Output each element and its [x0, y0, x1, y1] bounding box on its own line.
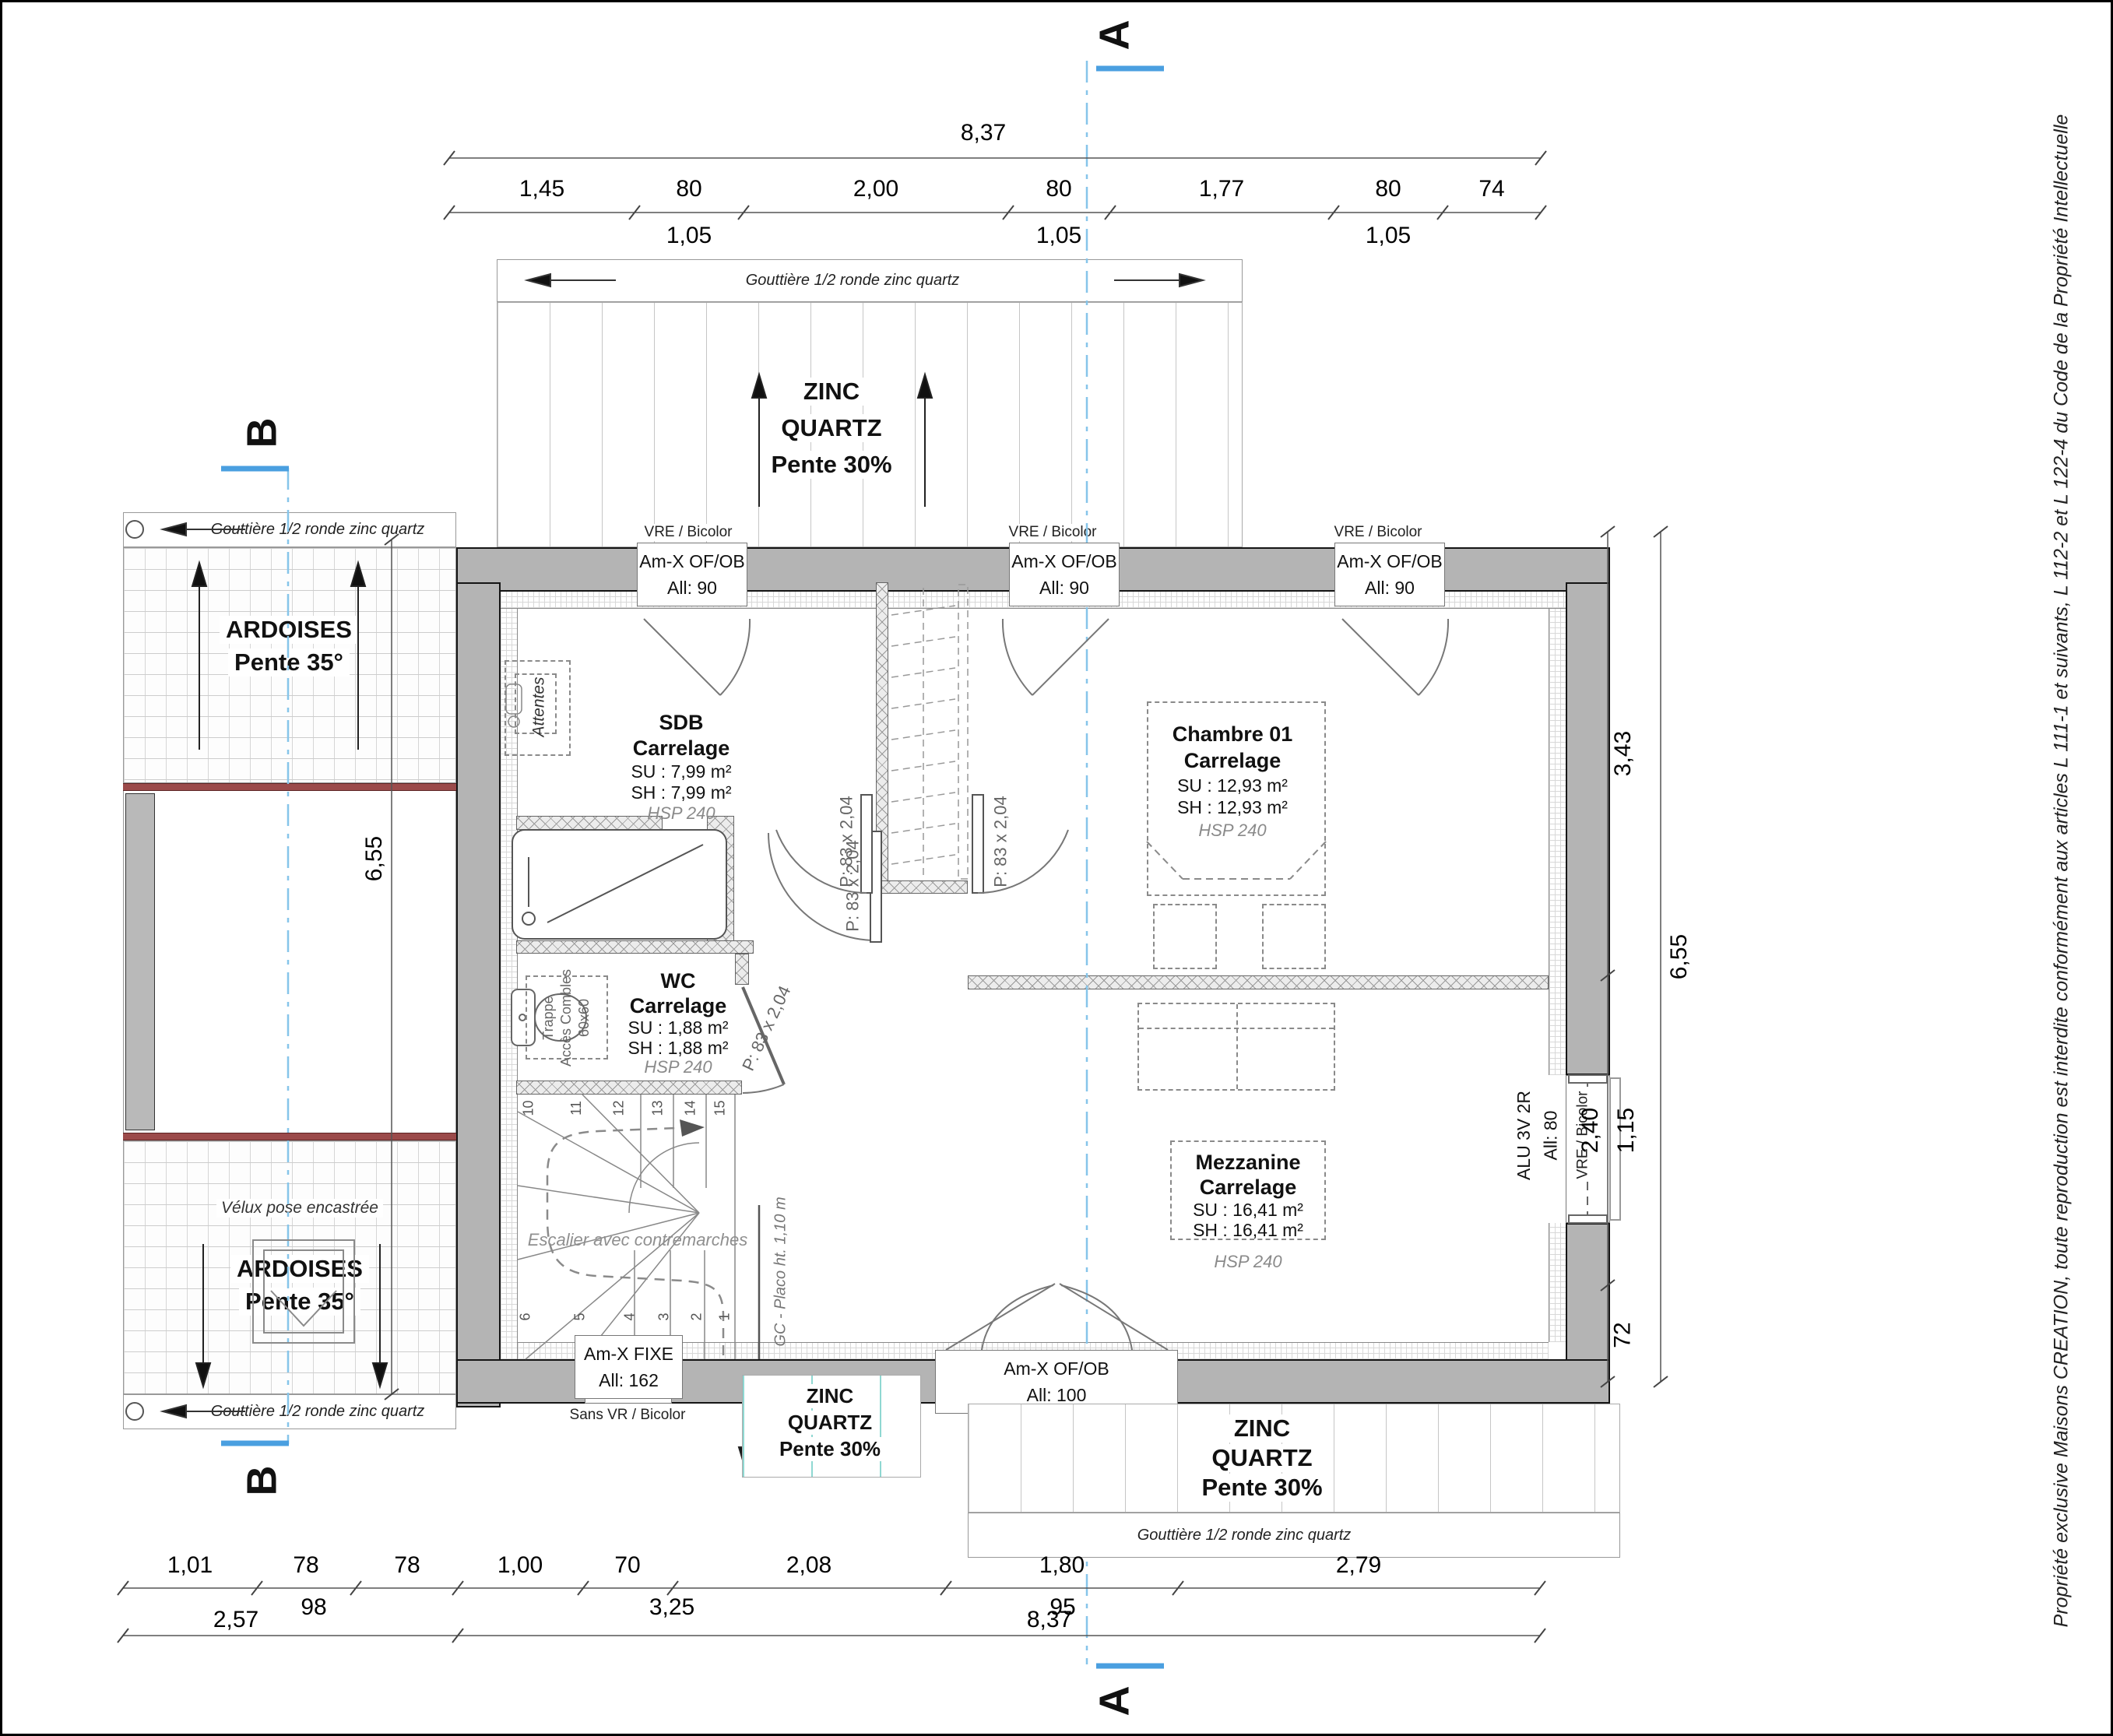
window-name: Am-X OF/OB — [1004, 1358, 1109, 1379]
floor-plan-sheet: Gouttière 1/2 ronde zinc quartz ARDOISES… — [0, 0, 2113, 1736]
french-door-arc-left — [982, 1285, 1053, 1350]
door-leaf-w3 — [1342, 619, 1419, 695]
window-sill: All: 90 — [667, 578, 717, 599]
window-label-top-2: Am-X OF/OB All: 90 — [1009, 543, 1120, 606]
window-sill: All: 162 — [599, 1370, 659, 1391]
window-sill: All: 100 — [1027, 1385, 1087, 1406]
door-arc-w3 — [1419, 619, 1448, 695]
bathtub — [512, 830, 726, 939]
closet-rail — [958, 585, 968, 879]
velux-window — [253, 1240, 354, 1343]
window-name: Am-X FIXE — [584, 1344, 673, 1365]
trappe-line3: 60x60 — [576, 968, 594, 1066]
door-arc-w1 — [720, 619, 750, 695]
door-swings — [644, 619, 1448, 1350]
door-leaf-w1 — [644, 619, 720, 695]
window-name: Am-X OF/OB — [639, 551, 744, 572]
window-label-top-1: Am-X OF/OB All: 90 — [637, 543, 747, 606]
door-arc-wc — [743, 1084, 784, 1093]
sofa — [1137, 1003, 1335, 1091]
window-name: Am-X OF/OB — [1011, 551, 1116, 572]
nightstand-right — [1262, 904, 1326, 969]
door-leaf-w2 — [1032, 619, 1109, 695]
door-arc-w2 — [1003, 619, 1032, 695]
closet-shelf-hatch — [891, 585, 968, 879]
nightstand-left — [1153, 904, 1217, 969]
trappe-line1: Trappe — [540, 968, 558, 1066]
french-door-arc-right — [1061, 1285, 1132, 1350]
french-door-leaf-right — [1060, 1284, 1168, 1350]
french-door-leaf-left — [946, 1284, 1055, 1350]
window-sill: All: 90 — [1039, 578, 1089, 599]
window-label-fixe: Am-X FIXE All: 162 — [575, 1335, 683, 1399]
window-name: Am-X OF/OB — [1337, 551, 1442, 572]
window-sill: All: 90 — [1365, 578, 1415, 599]
door-panel-closet-right — [972, 795, 983, 893]
window-label-top-3: Am-X OF/OB All: 90 — [1334, 543, 1445, 606]
trappe-line2: Accès Combles — [558, 968, 576, 1066]
stairs-walkline-arrow — [680, 1119, 705, 1137]
